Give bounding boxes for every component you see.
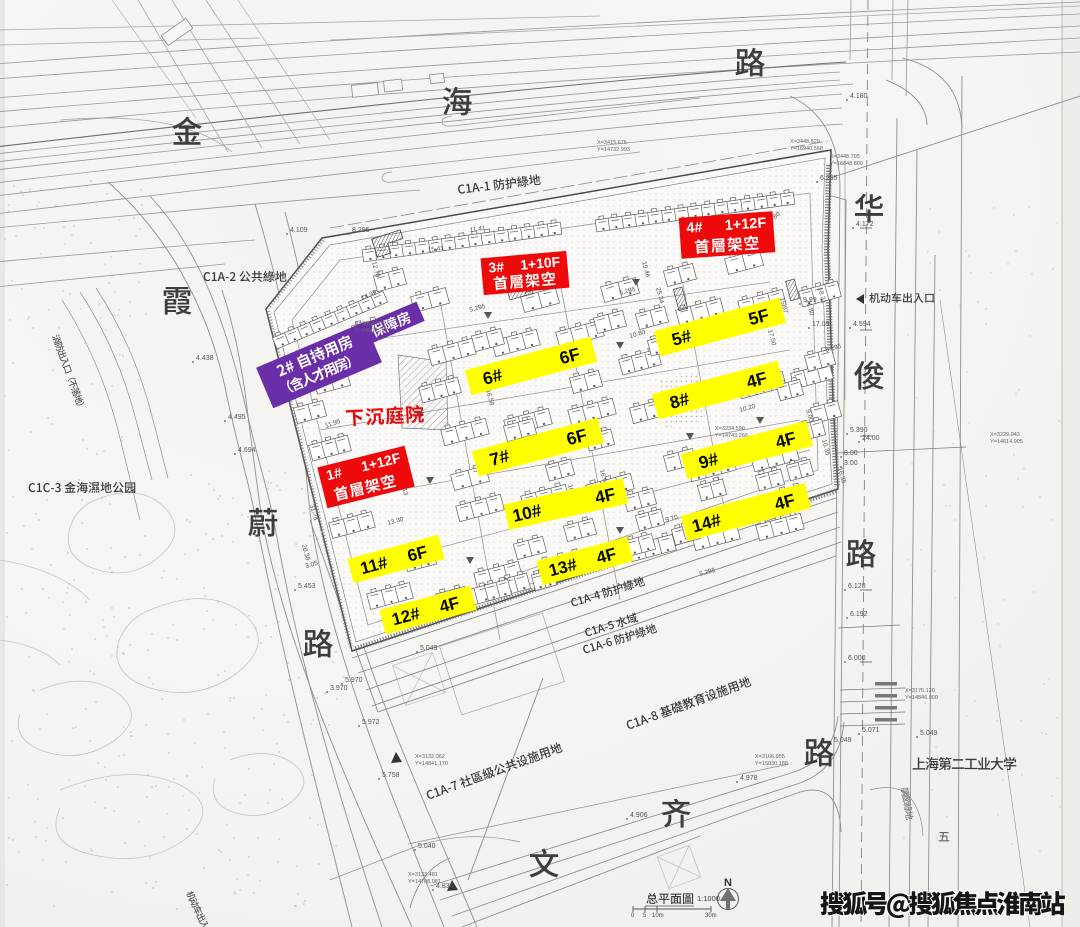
svg-text:X=3448.529: X=3448.529 — [790, 139, 820, 145]
svg-text:3#: 3# — [488, 258, 505, 275]
svg-text:Y=16848.800: Y=16848.800 — [830, 161, 863, 167]
svg-text:4.495: 4.495 — [228, 414, 246, 421]
svg-text:5.071: 5.071 — [862, 727, 880, 734]
svg-text:5.049: 5.049 — [920, 730, 938, 737]
svg-text:Y=15030.188: Y=15030.188 — [755, 761, 788, 767]
svg-text:N: N — [724, 877, 732, 889]
svg-text:5.453: 5.453 — [298, 583, 316, 590]
svg-text:Y=14841.170: Y=14841.170 — [415, 761, 448, 767]
svg-text:8.00: 8.00 — [844, 450, 858, 457]
svg-text:4.906: 4.906 — [630, 812, 648, 819]
svg-text:5.049: 5.049 — [420, 645, 438, 652]
svg-text:Y=14732.993: Y=14732.993 — [597, 147, 630, 153]
svg-text:4.180: 4.180 — [850, 93, 868, 100]
svg-text:5.970: 5.970 — [345, 677, 363, 684]
svg-text:X=3166.955: X=3166.955 — [755, 754, 785, 760]
svg-text:6.192: 6.192 — [850, 611, 868, 618]
svg-text:1+12F: 1+12F — [724, 215, 767, 234]
svg-text:4.694: 4.694 — [238, 447, 256, 454]
svg-text:30m: 30m — [705, 913, 717, 919]
svg-text:4.109: 4.109 — [290, 227, 308, 234]
svg-text:8.295: 8.295 — [352, 227, 370, 234]
svg-text:6.000: 6.000 — [848, 655, 866, 662]
svg-text:X=3234.590: X=3234.590 — [715, 426, 745, 432]
svg-text:X=3229.043: X=3229.043 — [990, 432, 1020, 438]
svg-text:Y=16940.568: Y=16940.568 — [790, 146, 823, 152]
svg-text:X=3304.063: X=3304.063 — [355, 321, 385, 327]
svg-text:X=3132.062: X=3132.062 — [415, 754, 445, 760]
svg-text:X=3448.795: X=3448.795 — [830, 154, 860, 160]
svg-text:Y=14614.905: Y=14614.905 — [990, 439, 1023, 445]
svg-text:4.172: 4.172 — [856, 221, 874, 228]
svg-text:5.972: 5.972 — [362, 719, 380, 726]
svg-text:5.758: 5.758 — [382, 772, 400, 779]
svg-text:Y=14708.081: Y=14708.081 — [408, 879, 441, 885]
svg-text:4.594: 4.594 — [853, 321, 871, 328]
svg-text:6.120: 6.120 — [848, 583, 866, 590]
svg-text:Y=14846.000: Y=14846.000 — [905, 695, 938, 701]
svg-text:3.970: 3.970 — [330, 685, 348, 692]
svg-text:5.040: 5.040 — [418, 843, 436, 850]
svg-text:3.00: 3.00 — [844, 460, 858, 467]
svg-text:Y=14666.292: Y=14666.292 — [355, 328, 388, 334]
svg-text:9.99: 9.99 — [803, 297, 817, 304]
svg-text:24.00: 24.00 — [862, 435, 880, 442]
svg-text:4.978: 4.978 — [740, 775, 758, 782]
svg-text:Y=14743.266: Y=14743.266 — [715, 433, 748, 439]
svg-text:4#: 4# — [686, 220, 703, 237]
svg-text:17.09: 17.09 — [812, 321, 830, 328]
svg-text:5.049: 5.049 — [834, 737, 852, 744]
svg-text:X=3175.120: X=3175.120 — [905, 688, 935, 694]
svg-text:6.295: 6.295 — [820, 175, 838, 182]
svg-text:X=3133.481: X=3133.481 — [408, 872, 438, 878]
svg-text:10m: 10m — [652, 913, 664, 919]
svg-text:5.390: 5.390 — [850, 427, 868, 434]
svg-text:X=3415.676: X=3415.676 — [597, 140, 627, 146]
svg-text:1:1000: 1:1000 — [697, 894, 720, 903]
svg-text:4.438: 4.438 — [196, 355, 214, 362]
